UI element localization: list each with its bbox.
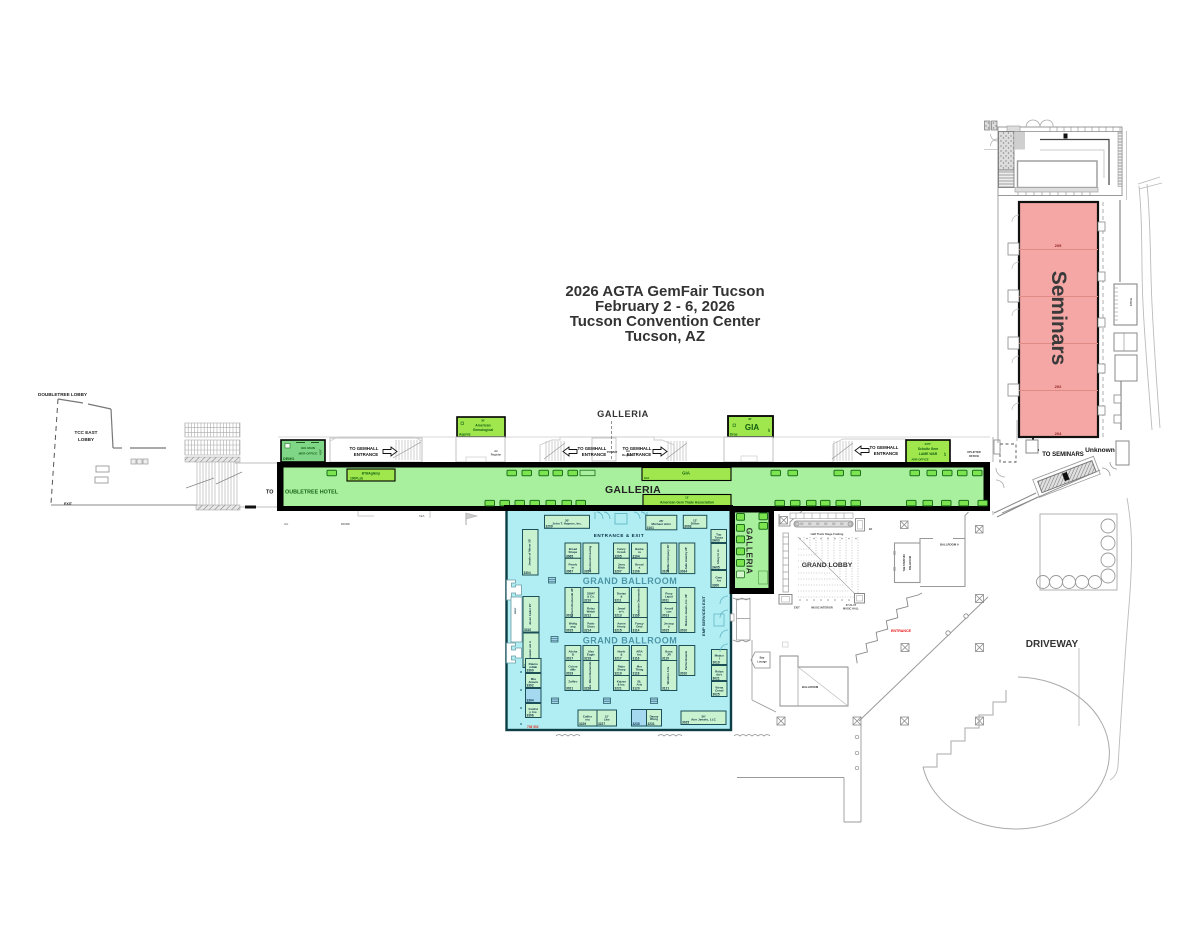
svg-text:3013: 3013 [662,614,669,618]
svg-text:Art: Art [717,579,721,583]
svg-text:3105: 3105 [662,570,669,574]
svg-text:ENTRANCE: ENTRANCE [874,451,898,456]
svg-text:GALLERIA: GALLERIA [745,528,755,575]
svg-text:3114: 3114 [633,629,640,633]
svg-text:19A: 19A [419,514,425,518]
svg-text:LAME WAR: LAME WAR [919,452,938,456]
svg-text:3120: 3120 [633,687,640,691]
svg-text:TO SEMINARS: TO SEMINARS [1042,452,1084,458]
svg-text:3215: 3215 [615,629,622,633]
svg-text:3221: 3221 [615,687,622,691]
svg-text:Air: Air [494,449,498,453]
svg-text:3010: 3010 [680,629,687,633]
svg-text:3209: 3209 [546,524,553,528]
svg-text:DEMO: DEMO [283,457,294,461]
svg-text:EXIT: EXIT [64,502,73,506]
svg-text:3210: 3210 [584,599,591,603]
svg-text:3021: 3021 [713,677,720,681]
svg-text:3119: 3119 [662,657,669,661]
svg-text:3025: 3025 [682,721,689,725]
svg-text:42'6": 42'6" [319,448,323,455]
svg-text:3116: 3116 [633,657,640,661]
svg-text:GRAND BALLROOM: GRAND BALLROOM [583,576,678,586]
svg-text:23'6": 23'6" [925,442,932,446]
svg-text:3300: 3300 [712,584,719,588]
svg-text:ENTRANCE & EXIT: ENTRANCE & EXIT [594,533,645,538]
svg-text:3231: 3231 [648,722,655,726]
svg-text:Wong: Wong [650,717,658,721]
svg-text:3110: 3110 [633,614,640,618]
svg-text:3219: 3219 [615,672,622,676]
svg-text:3229: 3229 [579,722,586,726]
svg-text:MODE: MODE [341,522,350,526]
svg-text:PerfectJewels: PerfectJewels [684,650,688,670]
svg-text:3003: 3003 [684,524,691,528]
svg-text:GIA: GIA [745,423,759,432]
svg-text:GRAND BALLROOM: GRAND BALLROOM [583,636,678,646]
svg-text:3304: 3304 [524,571,531,575]
svg-text:MUSIC HALL: MUSIC HALL [843,607,859,611]
svg-text:Zaffiro: Zaffiro [568,680,577,684]
svg-text:Weather Arts: Weather Arts [666,666,670,684]
svg-text:B1: B1 [869,527,873,531]
svg-text:3019: 3019 [713,661,720,665]
svg-text:Register: Register [491,453,501,457]
svg-text:L.A. West Diamonds: L.A. West Diamonds [588,661,592,689]
svg-text:BALLROOM A: BALLROOM A [940,543,959,547]
svg-text:ENTRANCE: ENTRANCE [627,452,651,457]
svg-text:100PLsb: 100PLsb [350,477,363,481]
svg-text:Lounge: Lounge [757,660,767,664]
svg-text:3218: 3218 [584,657,591,661]
svg-text:23': 23' [943,452,947,456]
svg-text:GRAND LOBBY: GRAND LOBBY [802,562,853,569]
svg-text:3A05: 3A05 [712,566,720,570]
svg-text:37-21-07: 37-21-07 [846,603,857,607]
svg-text:BALLROOM: BALLROOM [802,685,819,689]
svg-text:205: 205 [1055,243,1062,248]
svg-text:3304: 3304 [527,699,534,703]
svg-text:TCC EAST: TCC EAST [75,430,98,435]
svg-text:3205: 3205 [615,554,622,558]
svg-text:3214: 3214 [584,629,591,633]
svg-text:204: 204 [1055,431,1062,436]
svg-text:3104: 3104 [633,554,640,558]
svg-text:3302: 3302 [527,684,534,688]
svg-text:3021: 3021 [566,687,573,691]
svg-text:Like: Like [604,718,610,722]
svg-text:Gemological: Gemological [473,428,493,432]
svg-text:nia: nia [585,718,590,722]
svg-text:3212: 3212 [584,614,591,618]
svg-text:GALLERIA: GALLERIA [597,409,649,419]
svg-text:Half Track Stage Folding: Half Track Stage Folding [811,532,844,536]
svg-text:26': 26' [767,428,771,432]
svg-text:3017: 3017 [566,657,573,661]
svg-text:3207: 3207 [615,570,622,574]
svg-text:3217: 3217 [615,657,622,661]
svg-text:3010: 3010 [680,672,687,676]
svg-text:3025: 3025 [713,693,720,697]
svg-text:3213: 3213 [615,614,622,618]
svg-text:Aire Jewels, LLC: Aire Jewels, LLC [691,717,717,721]
svg-text:POWER: POWER [607,450,618,454]
svg-text:DRIVEWAY: DRIVEWAY [1026,639,1079,650]
svg-text:ENTRANCE: ENTRANCE [354,452,378,457]
svg-text:3A03: 3A03 [712,539,720,543]
svg-text:OFFICE: OFFICE [969,454,979,458]
svg-text:American Gem Trade Association: American Gem Trade Association [660,501,714,505]
svg-text:TO GEMHALL: TO GEMHALL [578,446,607,451]
svg-text:LOBBY: LOBBY [78,437,94,442]
svg-text:Schultz Gem: Schultz Gem [918,447,939,451]
svg-text:TO GEMHALL: TO GEMHALL [870,445,899,450]
svg-text:WEST: WEST [515,607,517,614]
svg-text:TO GEMHALL: TO GEMHALL [350,446,379,451]
svg-text:13': 13' [685,496,689,500]
svg-text:Makans Jewels, Inc. 36': Makans Jewels, Inc. 36' [684,594,688,626]
svg-text:GIG MAIN: GIG MAIN [301,446,315,450]
svg-text:OUBLETREE HOTEL: OUBLETREE HOTEL [285,490,339,496]
svg-text:3015: 3015 [662,629,669,633]
svg-text:EXIT: EXIT [794,606,800,610]
svg-text:3034: 3034 [680,570,687,574]
svg-text:BYBAglkmp: BYBAglkmp [362,472,380,476]
svg-text:DOUBLETREE LOBBY: DOUBLETREE LOBBY [38,392,87,397]
svg-text:John T. Haynes, Inc.: John T. Haynes, Inc. [552,521,582,525]
svg-text:Jewels of Mirror 30': Jewels of Mirror 30' [527,539,531,566]
svg-text:Amey to st.: Amey to st. [716,549,720,565]
svg-text:Diamond Creating: Diamond Creating [588,546,592,571]
svg-text:Jessn Feder 15': Jessn Feder 15' [528,603,532,625]
svg-text:3227: 3227 [598,722,605,726]
svg-text:3011: 3011 [566,614,573,618]
svg-text:MER-OFFICE: MER-OFFICE [299,452,318,456]
svg-text:3106: 3106 [633,570,640,574]
svg-text:3264: 3264 [584,570,591,574]
svg-text:BALLROOM: BALLROOM [909,556,912,570]
svg-text:ENTRANCE: ENTRANCE [582,452,606,457]
svg-text:3235: 3235 [633,722,640,726]
svg-text:Agents: Agents [459,433,471,437]
svg-text:Michael John: Michael John [651,522,671,526]
svg-text:TO GEMHALL: TO GEMHALL [623,446,652,451]
svg-text:THE STRATUM: THE STRATUM [903,555,906,572]
svg-text:3065: 3065 [566,554,573,558]
svg-text:Bay: Bay [760,656,765,660]
svg-text:ARR-OFFICE: ARR-OFFICE [911,458,928,462]
svg-text:3306: 3306 [527,714,534,718]
svg-text:Seminars: Seminars [1047,271,1070,366]
svg-text:30': 30' [481,419,485,423]
svg-text:Jeweler am A: Jeweler am A [528,640,532,659]
svg-text:3067: 3067 [566,570,573,574]
svg-text:Tucson, AZ: Tucson, AZ [625,328,705,345]
svg-text:Dillon: Dillon [691,521,700,525]
svg-text:202: 202 [1055,384,1062,389]
svg-text:Goldstein Diamonds: Goldstein Diamonds [636,588,640,616]
svg-text:3121: 3121 [662,687,669,691]
svg-text:GIA: GIA [644,476,650,480]
svg-text:3019: 3019 [566,672,573,676]
svg-text:3211: 3211 [615,599,622,603]
svg-text:3310: 3310 [524,628,531,632]
svg-text:30': 30' [748,417,752,421]
svg-text:736 502: 736 502 [527,725,539,729]
svg-text:EMP SERVICES EXIT: EMP SERVICES EXIT [701,596,706,636]
svg-text:3101: 3101 [647,526,654,530]
svg-text:3220: 3220 [584,687,591,691]
svg-text:Jade Jewelry 26': Jade Jewelry 26' [684,547,688,570]
svg-text:3118: 3118 [633,672,640,676]
svg-text:GIA: GIA [682,471,691,476]
svg-text:MUSIC INTERIOR: MUSIC INTERIOR [811,606,833,610]
svg-text:3300: 3300 [527,669,534,673]
svg-text:Unknown: Unknown [1085,447,1115,454]
svg-text:ENTRANCE: ENTRANCE [891,629,912,633]
svg-text:Drop: Drop [730,433,737,437]
svg-text:WalBe Company 26': WalBe Company 26' [666,544,670,572]
svg-text:KITCH: KITCH [1129,298,1133,306]
svg-text:3011: 3011 [662,599,669,603]
svg-text:3015: 3015 [566,629,573,633]
svg-text:TO: TO [266,490,273,496]
